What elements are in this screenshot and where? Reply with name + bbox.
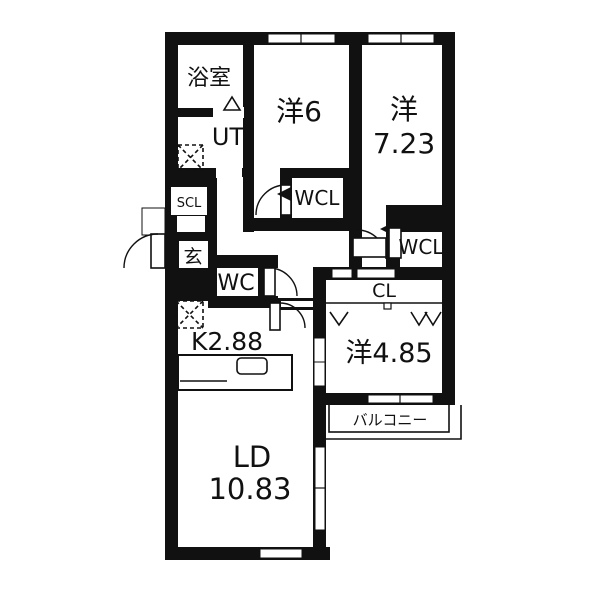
floorplan-drawing: 浴室 UT SCL 玄 WC WCL WCL 洋6 洋 7.23 CL 洋4.8…	[0, 0, 600, 600]
floorplan-canvas: 浴室 UT SCL 玄 WC WCL WCL 洋6 洋 7.23 CL 洋4.8…	[0, 0, 600, 600]
shoe-cabinet	[177, 216, 205, 232]
label-scl: SCL	[177, 196, 202, 211]
closet-north-opening-left	[332, 269, 352, 278]
entrance-door-leaf	[151, 234, 165, 268]
closet-north-opening-right	[357, 269, 395, 278]
label-balcony: バルコニー	[353, 411, 428, 429]
wall-room723-south	[386, 205, 455, 217]
window-ld-bottom	[260, 549, 302, 558]
label-closet: CL	[372, 280, 396, 302]
label-room485: 洋4.85	[345, 338, 432, 369]
label-wcl-center: WCL	[295, 186, 341, 210]
label-room723-2: 7.23	[373, 127, 435, 160]
kitchen-counter	[178, 355, 292, 390]
window-room6-top	[268, 34, 335, 43]
label-wcl-right: WCL	[399, 235, 445, 259]
window-room723-top	[368, 34, 434, 43]
label-room6: 洋6	[276, 95, 322, 128]
entrance-porch-step	[142, 208, 165, 235]
label-utility: UT	[212, 123, 245, 151]
wall-bath-east	[243, 45, 254, 232]
label-wc: WC	[217, 271, 254, 296]
kitchen-sink	[237, 358, 267, 374]
label-ld-1: LD	[233, 440, 272, 474]
utility-door-opening	[216, 167, 242, 178]
window-ld-east	[315, 447, 325, 530]
label-kitchen: K2.88	[191, 327, 263, 356]
label-bathroom: 浴室	[187, 66, 231, 91]
wall-room6-room723	[349, 45, 362, 218]
wall-wc-north	[208, 255, 278, 268]
wall-wc-south	[208, 296, 278, 308]
sliding-door-ld-room485	[314, 338, 325, 386]
wall-corridor-north	[243, 218, 362, 231]
wall-outer-bottom	[165, 547, 330, 560]
label-entrance: 玄	[183, 246, 202, 268]
label-room723-1: 洋	[390, 93, 418, 126]
label-ld-2: 10.83	[208, 472, 291, 506]
window-room485-south	[368, 395, 433, 403]
